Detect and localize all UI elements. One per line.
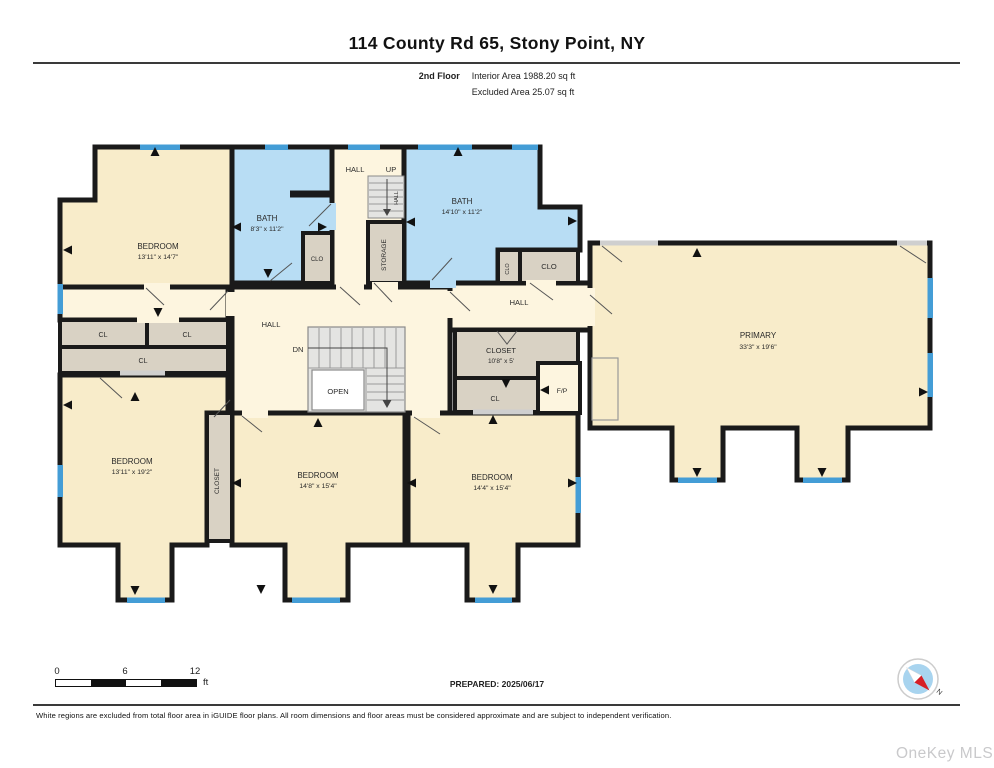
room-label-closet-s: CLOSET	[214, 468, 221, 494]
label-open: OPEN	[327, 387, 348, 396]
room-label-bedroom-se: BEDROOM	[471, 473, 513, 482]
label-stair-hall: HALL	[394, 191, 400, 205]
room-label-clo-small: CLO	[505, 263, 511, 275]
room-label-clo-big: CLO	[541, 262, 557, 271]
room-label-cl-2: CL	[183, 332, 192, 339]
room-dims-bedroom-sm: 14'8" x 15'4"	[299, 483, 337, 490]
disclaimer-text: White regions are excluded from total fl…	[36, 711, 958, 720]
room-label-closet-center: CLOSET	[486, 346, 516, 355]
room-dims-bedroom-sw: 13'11" x 19'2"	[112, 469, 153, 476]
compass-north-label: N	[935, 688, 943, 697]
label-fp: F/P	[557, 388, 568, 395]
floor-plan: BEDROOM 13'11" x 14'7" BATH 8'3" x 11'2"…	[0, 0, 994, 768]
watermark: OneKey MLS	[896, 745, 993, 763]
room-label-hall-center: HALL	[262, 320, 281, 329]
room-dims-primary: 33'3" x 19'6"	[739, 344, 777, 351]
room-label-bath-ne: BATH	[452, 197, 473, 206]
room-label-bedroom-sm: BEDROOM	[297, 471, 339, 480]
room-label-hall-ne: HALL	[510, 298, 529, 307]
room-label-cl-1: CL	[99, 332, 108, 339]
room-label-cl-center: CL	[491, 396, 500, 403]
label-up: UP	[386, 165, 396, 174]
room-dims-bath-nw: 8'3" x 11'2"	[251, 226, 285, 233]
room-label-bedroom-sw: BEDROOM	[111, 457, 153, 466]
room-label-clo-nw: CLO	[311, 257, 324, 263]
scale-tick-12: 12	[190, 666, 201, 677]
scale-tick-0: 0	[54, 666, 59, 677]
room-label-hall-top: HALL	[346, 165, 365, 174]
stairs-center	[308, 327, 405, 412]
room-label-bath-nw: BATH	[257, 214, 278, 223]
room-dims-closet-center: 10'8" x 5'	[488, 358, 514, 365]
scale-ticks: 0 6 12	[55, 666, 285, 678]
room-dims-bedroom-nw: 13'11" x 14'7"	[138, 254, 179, 261]
room-label-bedroom-nw: BEDROOM	[137, 242, 179, 251]
room-dims-bath-ne: 14'10" x 11'2"	[442, 209, 483, 216]
label-dn: DN	[293, 345, 304, 354]
room-label-storage: STORAGE	[381, 239, 388, 271]
room-label-cl-wide: CL	[139, 358, 148, 365]
room-label-primary: PRIMARY	[740, 331, 777, 340]
scale-tick-6: 6	[122, 666, 127, 677]
footer-divider	[33, 704, 960, 706]
room-dims-bedroom-se: 14'4" x 15'4"	[473, 485, 511, 492]
prepared-date: PREPARED: 2025/06/17	[0, 679, 994, 689]
